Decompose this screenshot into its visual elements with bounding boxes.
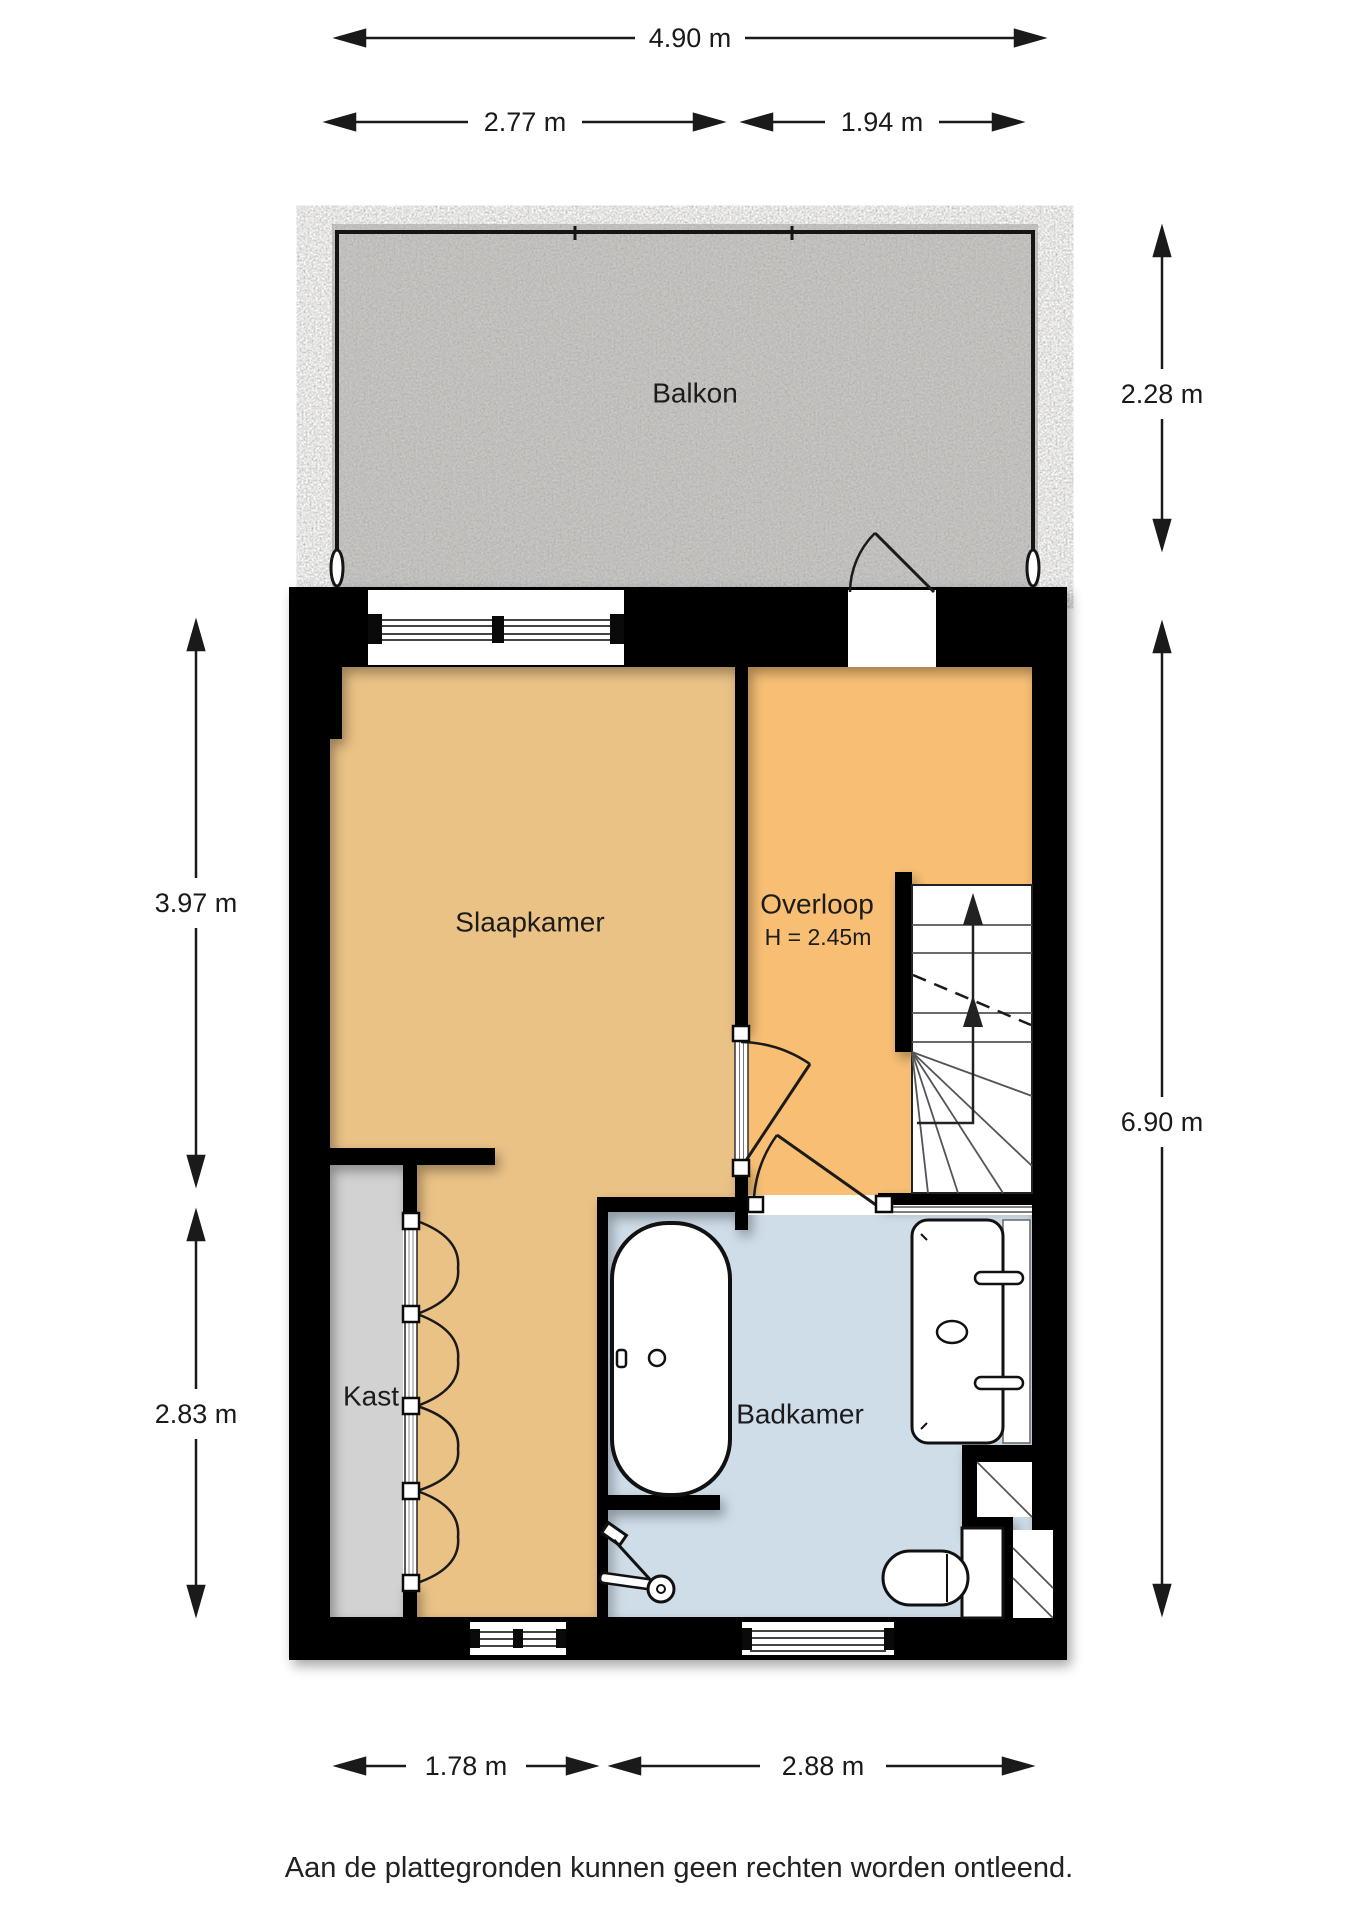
room-label-slaapkamer: Slaapkamer bbox=[455, 907, 604, 938]
bathtub-overflow bbox=[617, 1350, 626, 1367]
closet-door-pivot bbox=[403, 1398, 419, 1414]
door-post bbox=[733, 1160, 749, 1176]
dimension-label-top-total: 4.90 m bbox=[649, 23, 732, 53]
room-label-overloop: Overloop bbox=[760, 889, 874, 920]
room-label-kast: Kast bbox=[343, 1381, 399, 1412]
balcony: Balkon bbox=[331, 224, 1039, 590]
wall-closet-stub-top bbox=[403, 1165, 417, 1217]
dimension-label-left-lower: 2.83 m bbox=[155, 1399, 238, 1429]
dimension-label-bottom-right: 2.88 m bbox=[782, 1751, 865, 1781]
vanity-handle bbox=[975, 1272, 1023, 1284]
dimension-label-right-balcony: 2.28 m bbox=[1121, 379, 1204, 409]
dimension-label-left-upper: 3.97 m bbox=[155, 888, 238, 918]
room-label-overloop-height: H = 2.45m bbox=[765, 924, 872, 950]
room-label-balkon: Balkon bbox=[652, 378, 738, 409]
closet-door-pivot bbox=[403, 1575, 419, 1591]
dimension-label-bottom-left: 1.78 m bbox=[425, 1751, 508, 1781]
wall-under-stairs bbox=[878, 1193, 1032, 1205]
window-bathroom-bottom bbox=[742, 1622, 894, 1655]
thin-wall-under-stairs bbox=[878, 1205, 1032, 1215]
window-bedroom-top bbox=[368, 590, 624, 665]
wall-under-bathtub bbox=[597, 1495, 720, 1510]
wall-bathroom-top bbox=[597, 1197, 748, 1212]
outer-wall-bottom bbox=[289, 1617, 1067, 1660]
disclaimer-text: Aan de plattegronden kunnen geen rechten… bbox=[285, 1852, 1073, 1884]
door-post bbox=[748, 1197, 763, 1212]
toilet-bowl bbox=[883, 1551, 968, 1605]
door-panel bbox=[735, 1040, 748, 1160]
bathtub-drain bbox=[649, 1350, 665, 1366]
wall-bedroom-notch bbox=[330, 667, 342, 739]
outer-wall-left bbox=[289, 587, 330, 1660]
vanity-sink bbox=[912, 1220, 1030, 1443]
floor-plan-svg: Balkon bbox=[0, 0, 1358, 1920]
railing-post-right bbox=[1027, 550, 1039, 586]
wall-bedroom-overloop-upper bbox=[735, 667, 748, 1032]
dimension-label-top-left: 2.77 m bbox=[484, 107, 567, 137]
outer-wall-right bbox=[1032, 587, 1067, 1660]
closet-door-pivot bbox=[403, 1306, 419, 1322]
vanity-handle bbox=[975, 1377, 1023, 1389]
railing-post-left bbox=[331, 550, 343, 586]
bathtub bbox=[612, 1223, 730, 1495]
room-label-badkamer: Badkamer bbox=[736, 1399, 864, 1430]
window-bedroom-bottom bbox=[470, 1622, 566, 1655]
closet-door-pivot bbox=[403, 1213, 419, 1229]
sink-basin bbox=[937, 1321, 967, 1343]
stairs bbox=[912, 885, 1032, 1193]
wall-closet-top bbox=[289, 1148, 495, 1165]
wall-bathroom-left bbox=[597, 1200, 608, 1617]
door-post bbox=[876, 1196, 892, 1212]
closet-door-pivot bbox=[403, 1483, 419, 1499]
wall-shaft-b bbox=[962, 1445, 977, 1517]
wall-stairs-left bbox=[895, 872, 912, 1052]
shower-head-center bbox=[657, 1585, 665, 1593]
dimension-label-right-interior: 6.90 m bbox=[1121, 1107, 1204, 1137]
dimension-label-top-right: 1.94 m bbox=[841, 107, 924, 137]
door-post bbox=[733, 1026, 749, 1041]
vanity-counter bbox=[1003, 1220, 1030, 1443]
